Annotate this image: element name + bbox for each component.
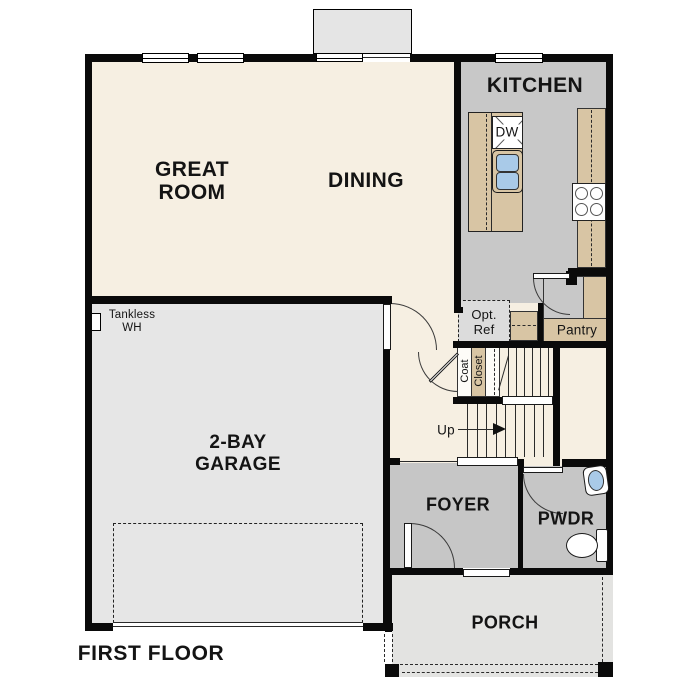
stair-tread (516, 348, 517, 396)
stair-tread (467, 404, 468, 457)
wall-segment (542, 54, 613, 62)
stair-tread (515, 404, 516, 457)
stair-tread (534, 404, 535, 457)
wall-segment (85, 623, 113, 631)
powder-sink-icon (582, 464, 610, 496)
closet-rod-dashed-line (494, 349, 495, 395)
powder-door-leaf (523, 467, 563, 473)
window-icon (197, 53, 244, 63)
stair-tread (543, 404, 544, 457)
pantry-label: Pantry (557, 323, 597, 338)
stair-tread (477, 404, 478, 457)
up-arrow-icon (493, 423, 506, 435)
garage-door-clearance-dashed (113, 523, 363, 623)
dishwasher-label: DW (495, 125, 520, 140)
porch-dashed-edge-bottom (400, 664, 598, 665)
cooktop-icon (572, 183, 606, 221)
garage-label: 2-BAY GARAGE (195, 432, 281, 476)
wall-segment (85, 54, 142, 62)
toilet-icon (566, 529, 608, 562)
wall-segment (85, 296, 392, 304)
wall-segment (385, 575, 392, 632)
wall-segment (518, 459, 524, 467)
window-icon (142, 53, 189, 63)
kitchen-sink-icon (492, 150, 523, 193)
garage-door-leaf (383, 304, 391, 350)
wall-segment (453, 341, 613, 348)
porch-post (598, 662, 613, 677)
wall-segment (188, 54, 197, 62)
kitchen-label: KITCHEN (487, 74, 583, 98)
wall-segment (606, 54, 613, 575)
first-floor-plan: GREAT ROOM DINING KITCHEN 2-BAY GARAGE F… (0, 0, 687, 687)
wall-segment (454, 307, 463, 313)
porch-dashed-edge-right (602, 577, 603, 662)
wall-segment (454, 57, 461, 310)
foyer-hall-threshold-line (400, 461, 457, 462)
garage-door-icon (113, 622, 363, 631)
porch-post (385, 664, 399, 677)
porch-label: PORCH (471, 613, 538, 634)
front-door-leaf (404, 523, 412, 568)
wall-segment (410, 54, 495, 62)
foyer-label: FOYER (426, 495, 490, 516)
opt-ref-label: Opt. Ref (471, 307, 496, 337)
closet-label: Closet (473, 355, 485, 386)
stair-landing (457, 457, 518, 466)
stair-tread (532, 348, 533, 396)
window-icon (495, 53, 543, 63)
stair-tread (540, 348, 541, 396)
wall-segment (553, 348, 560, 466)
wall-segment (243, 54, 316, 62)
up-arrow-line (458, 429, 496, 430)
optional-counter (510, 311, 538, 341)
up-label: Up (437, 423, 455, 438)
dining-label: DINING (328, 169, 404, 193)
wall-segment (390, 458, 400, 465)
optional-counter-dashed-line (512, 325, 536, 326)
great-room-label: GREAT ROOM (155, 158, 229, 204)
island-counter-dashed-line (486, 114, 487, 230)
rear-bump-out (313, 9, 412, 54)
bump-out-opening-line (363, 57, 410, 58)
powder-label: PWDR (538, 509, 595, 530)
coat-label: Coat (459, 359, 471, 382)
wall-segment (510, 568, 613, 575)
porch-dashed-edge-left (392, 634, 393, 662)
stair-tread (524, 404, 525, 457)
stair-tread (486, 404, 487, 457)
wall-segment (562, 459, 613, 467)
stair-tread (548, 348, 549, 396)
plan-title: FIRST FLOOR (78, 642, 225, 666)
stair-tread (524, 348, 525, 396)
pantry-door-leaf (533, 273, 570, 279)
pantry-shelf-right (583, 277, 607, 318)
window-icon (316, 53, 363, 62)
wall-segment (453, 397, 502, 404)
porch-dashed-edge-left (384, 634, 385, 662)
stair-landing (502, 396, 553, 405)
wall-segment (390, 568, 463, 575)
tankless-wh-label: Tankless WH (109, 309, 155, 335)
porch-dashed-step-line (402, 672, 598, 673)
wall-segment (85, 54, 92, 631)
wall-segment (518, 467, 523, 568)
front-door-threshold (463, 569, 510, 577)
